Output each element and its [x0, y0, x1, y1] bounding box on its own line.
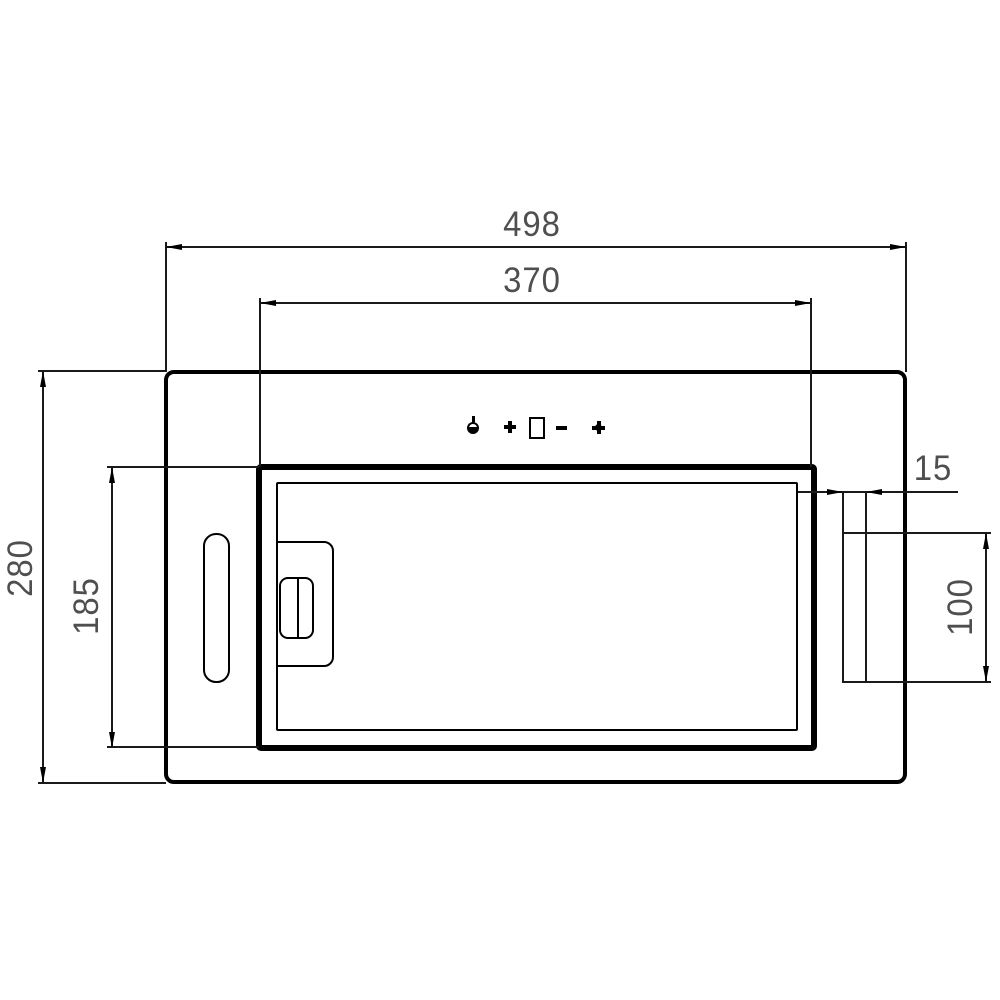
extension-line [259, 298, 261, 467]
duct-left-edge [842, 491, 844, 683]
arrowhead [983, 666, 989, 682]
arrowhead [866, 489, 882, 495]
dimension-value: 100 [941, 578, 981, 636]
side-vent-slot [203, 533, 230, 683]
extension-line [905, 242, 907, 372]
minus-icon [556, 426, 567, 430]
arrowhead [109, 467, 115, 483]
display-icon [529, 417, 545, 439]
arrowhead [795, 300, 811, 306]
arrowhead [827, 489, 843, 495]
extension-line [38, 782, 166, 784]
arrowhead [40, 371, 46, 387]
dimension-value: 280 [1, 539, 41, 597]
arrowhead [166, 244, 182, 250]
arrowhead [109, 732, 115, 748]
lamp-icon [467, 416, 483, 436]
extension-line [107, 746, 259, 748]
duct-bottom-edge [842, 681, 991, 683]
dimension-line [166, 246, 906, 248]
duct-top-edge [842, 532, 991, 534]
fan-icon [592, 421, 605, 434]
extension-line [810, 298, 812, 467]
dimension-line [42, 371, 44, 783]
filter-panel-inner-frame [276, 482, 798, 731]
dimension-value: 498 [503, 205, 561, 245]
arrowhead [260, 300, 276, 306]
dimension-value: 370 [503, 261, 561, 301]
technical-drawing-canvas: 498 370 280 185 15 100 [0, 0, 1000, 1000]
dimension-value: 15 [914, 449, 952, 489]
filter-latch-handle-divider [297, 579, 299, 637]
dimension-value: 185 [67, 577, 107, 635]
duct-flange-line [865, 491, 867, 683]
dimension-line [985, 533, 987, 682]
dimension-line [111, 467, 113, 748]
extension-line [107, 466, 259, 468]
dimension-line [260, 302, 811, 304]
arrowhead [890, 244, 906, 250]
extension-line [165, 242, 167, 372]
arrowhead [40, 767, 46, 783]
plus-icon [504, 421, 516, 433]
extension-line [38, 370, 166, 372]
arrowhead [983, 533, 989, 549]
